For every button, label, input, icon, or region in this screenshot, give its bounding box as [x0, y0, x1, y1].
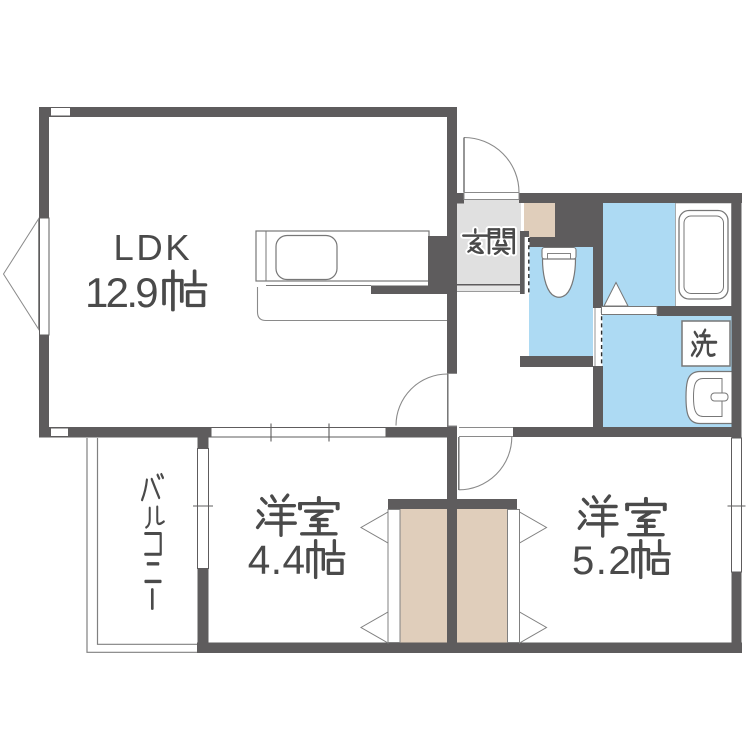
- svg-text:12.9: 12.9: [85, 269, 157, 316]
- svg-text:5.2: 5.2: [572, 539, 632, 583]
- svg-text:4.4: 4.4: [248, 537, 306, 583]
- svg-text:LDK: LDK: [114, 227, 193, 268]
